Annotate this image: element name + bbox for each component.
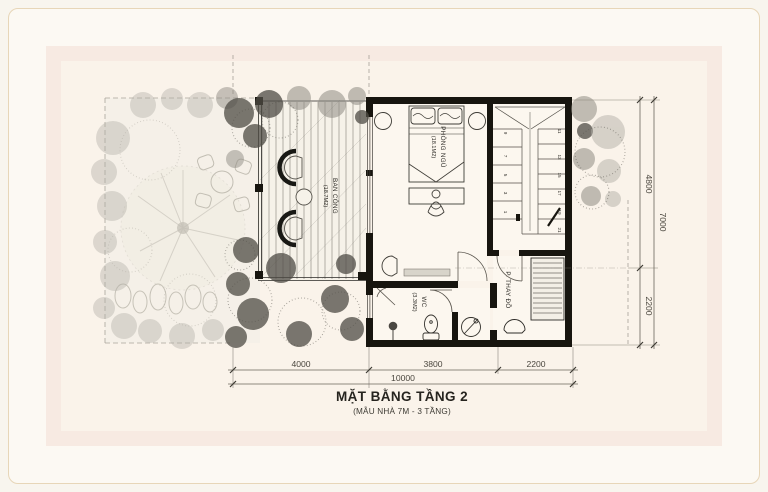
svg-text:19: 19 <box>557 209 562 215</box>
dim-4000: 4000 <box>291 359 310 369</box>
floor-plan-drawing: BAN CÔNG (18.7M2) 1 3 5 7 9 11 13 15 17 … <box>0 0 768 492</box>
wc-label: WC <box>420 296 427 307</box>
balcony-area: (18.7M2) <box>322 185 328 208</box>
balcony-label: BAN CÔNG <box>331 178 340 214</box>
shower-head <box>389 322 398 331</box>
desk <box>404 269 450 276</box>
large-tree <box>121 166 245 290</box>
dim-2200r: 2200 <box>644 296 654 315</box>
drawing-title: MẶT BẰNG TẦNG 2 <box>336 389 468 404</box>
wardrobe <box>531 258 564 320</box>
svg-text:17: 17 <box>557 190 562 196</box>
balcony: BAN CÔNG (18.7M2) <box>255 97 366 281</box>
svg-text:3: 3 <box>503 192 508 195</box>
svg-text:9: 9 <box>503 132 508 135</box>
wc-area: (3.3M2) <box>411 292 417 311</box>
balcony-table <box>296 189 312 205</box>
dim-10000: 10000 <box>391 373 415 383</box>
bedroom-area: (18.1M2) <box>430 136 436 159</box>
svg-text:5: 5 <box>503 174 508 177</box>
drawing-subtitle: (MẪU NHÀ 7M - 3 TẦNG) <box>353 405 451 416</box>
svg-text:15: 15 <box>557 172 562 178</box>
dim-2200b: 2200 <box>526 359 545 369</box>
dim-7000: 7000 <box>658 212 668 231</box>
svg-text:21: 21 <box>557 227 562 233</box>
dim-3800: 3800 <box>423 359 442 369</box>
svg-text:7: 7 <box>503 155 508 158</box>
svg-text:13: 13 <box>557 154 562 160</box>
svg-text:1: 1 <box>503 211 508 214</box>
bedroom-label: PHÒNG NGỦ <box>439 126 448 168</box>
dim-4800: 4800 <box>644 174 654 193</box>
svg-text:11: 11 <box>557 129 562 134</box>
